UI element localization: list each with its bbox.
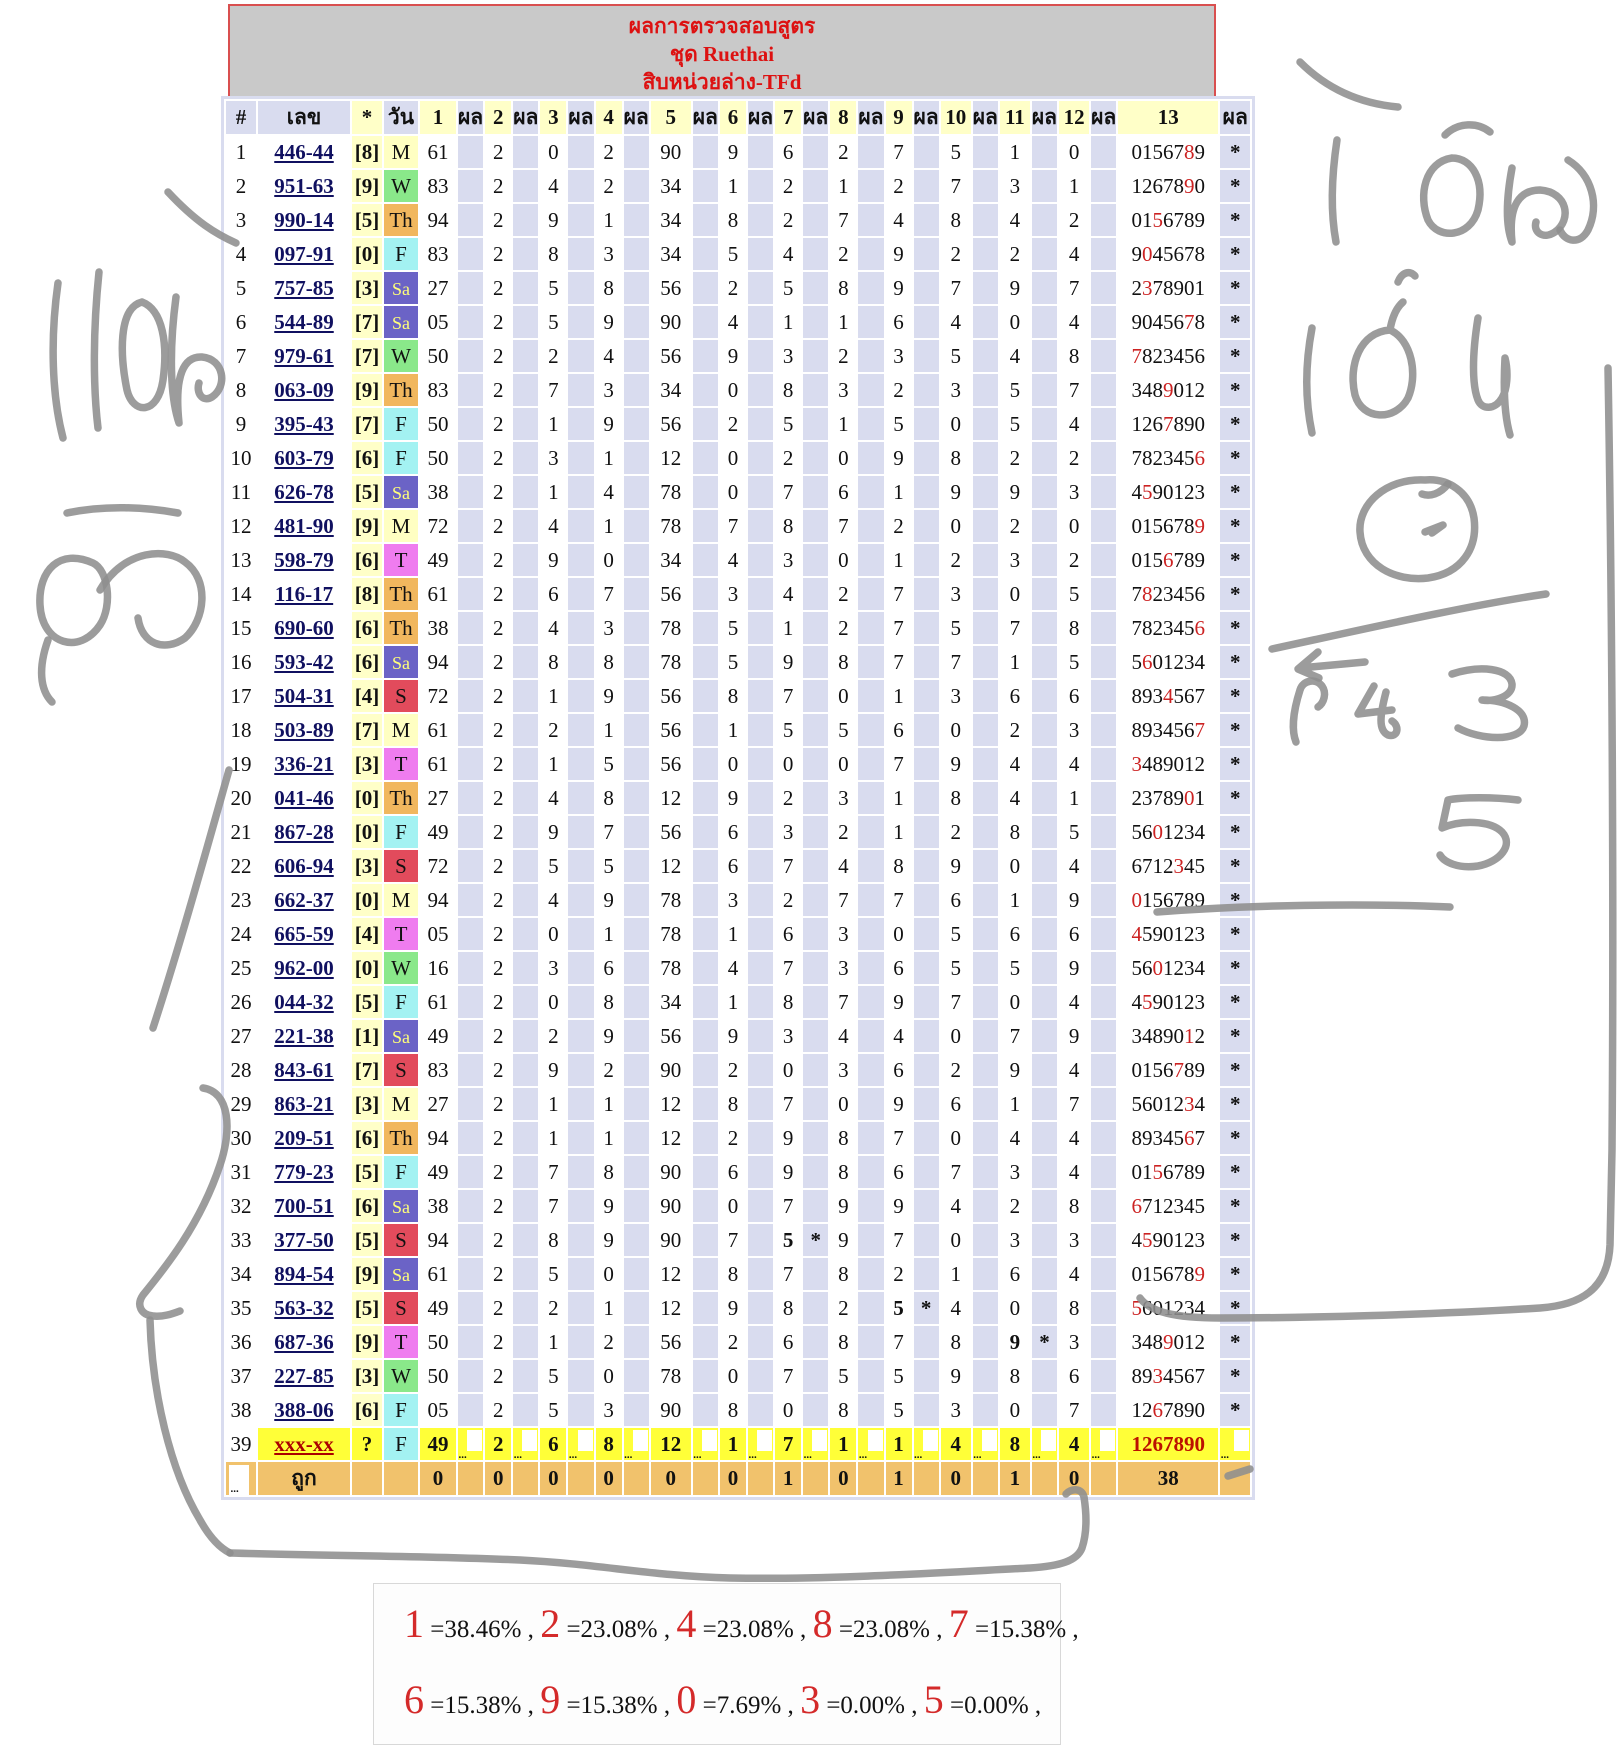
value-cell-6: 1 xyxy=(719,917,747,951)
table-row: 35563-32[5]S49221129825*4085601234* xyxy=(225,1291,1251,1325)
value-cell-9: 7 xyxy=(885,611,913,645)
value-cell-5: 12 xyxy=(650,441,692,475)
value-cell-3: 1 xyxy=(539,475,567,509)
number-link[interactable]: 097-91 xyxy=(274,242,334,266)
value-cell-1: 38 xyxy=(419,611,457,645)
number-link[interactable]: 843-61 xyxy=(274,1058,334,1082)
result-cell-2 xyxy=(512,815,539,849)
result-cell-7 xyxy=(802,1053,829,1087)
result-cell-2 xyxy=(512,407,539,441)
value-cell-9: 7 xyxy=(885,747,913,781)
prediction-row: 39xxx-xx?F49...2...6...8...12...1...7...… xyxy=(225,1427,1251,1461)
value-cell-12: 7 xyxy=(1058,373,1090,407)
value-cell-1: 38 xyxy=(419,1189,457,1223)
result-cell-7 xyxy=(802,951,829,985)
value-cell-11: 5 xyxy=(999,373,1031,407)
result-cell-7: * xyxy=(802,1223,829,1257)
row-index: 18 xyxy=(225,713,257,747)
value-cell-8: 2 xyxy=(829,577,857,611)
number-cell: 503-89 xyxy=(257,713,351,747)
value-cell-12: 0 xyxy=(1058,509,1090,543)
value-cell-12: 8 xyxy=(1058,1291,1090,1325)
star-bracket-cell: [6] xyxy=(351,1189,383,1223)
footer-count-2: 0 xyxy=(484,1461,512,1496)
result-cell-10 xyxy=(972,611,999,645)
value-cell-5: 56 xyxy=(650,1325,692,1359)
summary-line-2: 6 =15.38% , 9 =15.38% , 0 =7.69% , 3 =0.… xyxy=(404,1662,1060,1738)
handwriting-right-word-top xyxy=(1300,62,1398,107)
result-cell-10 xyxy=(972,1291,999,1325)
value-cell-8: 8 xyxy=(829,1325,857,1359)
table-row: 6544-89[7]Sa052599041164049045678* xyxy=(225,305,1251,339)
value-cell-7: 9 xyxy=(774,645,802,679)
value-cell-13: 0156789 xyxy=(1117,1257,1219,1291)
value-cell-3: 2 xyxy=(539,1291,567,1325)
value-cell-4: 8 xyxy=(595,271,623,305)
value-cell-1: 50 xyxy=(419,339,457,373)
number-link[interactable]: 377-50 xyxy=(274,1228,334,1252)
result-cell-4 xyxy=(623,1325,650,1359)
number-cell: 843-61 xyxy=(257,1053,351,1087)
value-cell-12: 2 xyxy=(1058,543,1090,577)
value-cell-13: 7823456 xyxy=(1117,611,1219,645)
value-cell-3: 6 xyxy=(539,577,567,611)
summary-percent: =23.08% , xyxy=(560,1616,676,1643)
number-link[interactable]: 336-21 xyxy=(274,752,334,776)
value-cell-10: 8 xyxy=(940,781,972,815)
value-cell-5: 78 xyxy=(650,475,692,509)
result-cell-3 xyxy=(567,645,594,679)
result-cell-1 xyxy=(457,917,484,951)
value-cell-12: 5 xyxy=(1058,645,1090,679)
number-link[interactable]: 481-90 xyxy=(274,514,334,538)
value-cell-6: 9 xyxy=(719,1019,747,1053)
result-cell-12 xyxy=(1090,1155,1117,1189)
value-cell-1: 61 xyxy=(419,135,457,169)
value-cell-4: 2 xyxy=(595,169,623,203)
result-cell-4 xyxy=(623,611,650,645)
result-cell-4 xyxy=(623,1257,650,1291)
header-row: #เลข*วัน1ผล2ผล3ผล4ผล5ผล6ผล7ผล8ผล9ผล10ผล1… xyxy=(225,100,1251,135)
result-cell-7 xyxy=(802,1019,829,1053)
value-cell-11: 2 xyxy=(999,713,1031,747)
value-cell-9: 5 xyxy=(885,407,913,441)
table-row: 21867-28[0]F492975663212855601234* xyxy=(225,815,1251,849)
row-index: 15 xyxy=(225,611,257,645)
result-cell-13: * xyxy=(1219,917,1251,951)
table-row: 14116-17[8]Th612675634273057823456* xyxy=(225,577,1251,611)
value-cell-13: 5601234 xyxy=(1117,645,1219,679)
result-cell-3 xyxy=(567,1325,594,1359)
result-cell-8 xyxy=(857,1359,884,1393)
value-cell-6: 9 xyxy=(719,1291,747,1325)
value-cell-1: 94 xyxy=(419,203,457,237)
handwriting-mark-2 xyxy=(140,1088,227,1316)
value-cell-2: 2 xyxy=(484,985,512,1019)
value-cell-6: 3 xyxy=(719,577,747,611)
result-cell-12 xyxy=(1090,679,1117,713)
value-cell-2: 2 xyxy=(484,577,512,611)
footer-count-1: 0 xyxy=(419,1461,457,1496)
number-link[interactable]: 063-09 xyxy=(274,378,334,402)
star-bracket-cell: [7] xyxy=(351,407,383,441)
result-cell-9 xyxy=(913,679,940,713)
value-cell-2: 2 xyxy=(484,1325,512,1359)
number-link[interactable]: 665-59 xyxy=(274,922,334,946)
number-link[interactable]: 598-79 xyxy=(274,548,334,572)
value-cell-7: 6 xyxy=(774,1325,802,1359)
footer-empty-cell xyxy=(567,1461,594,1496)
result-cell-5 xyxy=(692,611,719,645)
value-cell-8: 8 xyxy=(829,1393,857,1427)
result-cell-12 xyxy=(1090,985,1117,1019)
result-cell-12 xyxy=(1090,1359,1117,1393)
star-bracket-cell: [6] xyxy=(351,1121,383,1155)
number-link[interactable]: 504-31 xyxy=(274,684,334,708)
star-bracket-cell: [9] xyxy=(351,1325,383,1359)
value-cell-5: 90 xyxy=(650,1155,692,1189)
value-cell-8: 2 xyxy=(829,815,857,849)
footer-empty-cell xyxy=(383,1461,419,1496)
star-bracket-cell: [5] xyxy=(351,475,383,509)
result-cell-8 xyxy=(857,849,884,883)
result-cell-12 xyxy=(1090,577,1117,611)
result-cell-2 xyxy=(512,1121,539,1155)
number-link[interactable]: 606-94 xyxy=(274,854,334,878)
day-cell: W xyxy=(383,951,419,985)
result-cell-2 xyxy=(512,203,539,237)
value-cell-3: 8 xyxy=(539,1223,567,1257)
day-cell: S xyxy=(383,849,419,883)
result-cell-13: * xyxy=(1219,1257,1251,1291)
number-link[interactable]: 962-00 xyxy=(274,956,334,980)
result-cell-1 xyxy=(457,441,484,475)
row-index: 13 xyxy=(225,543,257,577)
result-cell-1 xyxy=(457,339,484,373)
number-link[interactable]: 690-60 xyxy=(274,616,334,640)
value-cell-1: 72 xyxy=(419,679,457,713)
number-link[interactable]: 990-14 xyxy=(274,208,334,232)
result-cell-8 xyxy=(857,339,884,373)
result-cell-6 xyxy=(747,305,774,339)
value-cell-7: 2 xyxy=(774,781,802,815)
value-cell-9: 5 xyxy=(885,1291,913,1325)
result-cell-13: * xyxy=(1219,849,1251,883)
result-cell-8 xyxy=(857,203,884,237)
value-cell-9: 6 xyxy=(885,1155,913,1189)
number-cell: 044-32 xyxy=(257,985,351,1019)
number-cell: 700-51 xyxy=(257,1189,351,1223)
value-cell-10: 9 xyxy=(940,1359,972,1393)
result-cell-8 xyxy=(857,1189,884,1223)
value-cell-3: 3 xyxy=(539,441,567,475)
value-cell-11: 8 xyxy=(999,1427,1031,1461)
result-cell-11 xyxy=(1031,849,1058,883)
value-cell-1: 94 xyxy=(419,645,457,679)
result-cell-3 xyxy=(567,373,594,407)
number-cell: 662-37 xyxy=(257,883,351,917)
number-link[interactable]: 779-23 xyxy=(274,1160,334,1184)
result-cell-11 xyxy=(1031,917,1058,951)
number-cell: 563-32 xyxy=(257,1291,351,1325)
day-cell: S xyxy=(383,1053,419,1087)
value-cell-11: 2 xyxy=(999,237,1031,271)
value-cell-1: 61 xyxy=(419,713,457,747)
value-cell-1: 94 xyxy=(419,883,457,917)
value-cell-4: 2 xyxy=(595,135,623,169)
result-cell-10 xyxy=(972,1223,999,1257)
number-link[interactable]: 603-79 xyxy=(274,446,334,470)
value-cell-11: 3 xyxy=(999,543,1031,577)
value-cell-11: 4 xyxy=(999,747,1031,781)
value-cell-13: 8934567 xyxy=(1117,713,1219,747)
result-cell-13: * xyxy=(1219,441,1251,475)
row-index: 37 xyxy=(225,1359,257,1393)
result-cell-11 xyxy=(1031,475,1058,509)
table-row: 4097-91[0]F832833454292249045678* xyxy=(225,237,1251,271)
day-cell: F xyxy=(383,985,419,1019)
result-cell-11 xyxy=(1031,135,1058,169)
result-cell-4 xyxy=(623,1121,650,1155)
value-cell-6: 2 xyxy=(719,271,747,305)
number-link[interactable]: 503-89 xyxy=(274,718,334,742)
star-bracket-cell: [5] xyxy=(351,985,383,1019)
value-cell-6: 9 xyxy=(719,135,747,169)
value-cell-11: 2 xyxy=(999,441,1031,475)
result-cell-13: * xyxy=(1219,509,1251,543)
value-cell-9: 7 xyxy=(885,1121,913,1155)
value-cell-5: 12 xyxy=(650,1257,692,1291)
value-cell-9: 5 xyxy=(885,1359,913,1393)
value-cell-7: 0 xyxy=(774,1053,802,1087)
col-header-7: 7 xyxy=(774,100,802,135)
value-cell-12: 7 xyxy=(1058,1087,1090,1121)
number-link[interactable]: 044-32 xyxy=(274,990,334,1014)
number-link[interactable]: 951-63 xyxy=(274,174,334,198)
result-cell-4 xyxy=(623,917,650,951)
result-cell-5 xyxy=(692,985,719,1019)
day-cell: F xyxy=(383,1393,419,1427)
number-link[interactable]: 209-51 xyxy=(274,1126,334,1150)
value-cell-10: 4 xyxy=(940,1189,972,1223)
number-link[interactable]: 700-51 xyxy=(274,1194,334,1218)
result-cell-13: ... xyxy=(1219,1427,1251,1461)
result-cell-13: * xyxy=(1219,1393,1251,1427)
result-cell-12 xyxy=(1090,407,1117,441)
result-cell-13: * xyxy=(1219,713,1251,747)
number-link[interactable]: 894-54 xyxy=(274,1262,334,1286)
result-cell-10 xyxy=(972,1019,999,1053)
number-link[interactable]: 388-06 xyxy=(274,1398,334,1422)
day-cell: Sa xyxy=(383,645,419,679)
number-link[interactable]: 041-46 xyxy=(274,786,334,810)
value-cell-7: 3 xyxy=(774,543,802,577)
summary-digit: 0 xyxy=(676,1677,696,1722)
summary-percent: =0.00% , xyxy=(944,1692,1041,1719)
value-cell-10: 3 xyxy=(940,577,972,611)
result-cell-3 xyxy=(567,577,594,611)
value-cell-2: 2 xyxy=(484,1053,512,1087)
result-cell-13: * xyxy=(1219,1325,1251,1359)
value-cell-6: 2 xyxy=(719,1053,747,1087)
number-link[interactable]: 687-36 xyxy=(274,1330,334,1354)
result-cell-10: ... xyxy=(972,1427,999,1461)
value-cell-2: 2 xyxy=(484,135,512,169)
value-cell-13: 0156789 xyxy=(1117,543,1219,577)
value-cell-2: 2 xyxy=(484,849,512,883)
result-cell-9 xyxy=(913,1087,940,1121)
result-cell-10 xyxy=(972,305,999,339)
result-cell-9 xyxy=(913,1053,940,1087)
star-bracket-cell: [5] xyxy=(351,1155,383,1189)
value-cell-12: 1 xyxy=(1058,781,1090,815)
value-cell-5: 34 xyxy=(650,543,692,577)
footer-empty-cell xyxy=(1090,1461,1117,1496)
result-cell-8 xyxy=(857,543,884,577)
number-link[interactable]: 563-32 xyxy=(274,1296,334,1320)
row-index: 3 xyxy=(225,203,257,237)
number-link[interactable]: 863-21 xyxy=(274,1092,334,1116)
result-cell-2: ... xyxy=(512,1427,539,1461)
result-cell-2 xyxy=(512,883,539,917)
value-cell-2: 2 xyxy=(484,543,512,577)
number-link[interactable]: 446-44 xyxy=(274,140,334,164)
value-cell-13: 6712345 xyxy=(1117,849,1219,883)
value-cell-4: 8 xyxy=(595,781,623,815)
value-cell-6: 0 xyxy=(719,1189,747,1223)
value-cell-13: 3489012 xyxy=(1117,373,1219,407)
value-cell-5: 78 xyxy=(650,1359,692,1393)
value-cell-9: 7 xyxy=(885,645,913,679)
handwriting-small-note xyxy=(1358,686,1397,735)
value-cell-6: 6 xyxy=(719,815,747,849)
day-cell: F xyxy=(383,407,419,441)
value-cell-1: 72 xyxy=(419,509,457,543)
day-cell: T xyxy=(383,1325,419,1359)
value-cell-2: 2 xyxy=(484,747,512,781)
value-cell-8: 1 xyxy=(829,407,857,441)
value-cell-11: 1 xyxy=(999,645,1031,679)
number-link[interactable]: xxx-xx xyxy=(274,1432,334,1456)
value-cell-5: 90 xyxy=(650,1189,692,1223)
value-cell-4: 1 xyxy=(595,1087,623,1121)
value-cell-3: 1 xyxy=(539,1121,567,1155)
result-cell-8 xyxy=(857,645,884,679)
result-cell-5 xyxy=(692,169,719,203)
number-link[interactable]: 867-28 xyxy=(274,820,334,844)
result-cell-5 xyxy=(692,373,719,407)
value-cell-10: 4 xyxy=(940,1291,972,1325)
value-cell-12: 9 xyxy=(1058,951,1090,985)
handwriting-left-word-top xyxy=(94,272,99,428)
value-cell-9: 9 xyxy=(885,271,913,305)
value-cell-12: 4 xyxy=(1058,849,1090,883)
value-cell-1: 49 xyxy=(419,1155,457,1189)
number-link[interactable]: 979-61 xyxy=(274,344,334,368)
value-cell-5: 12 xyxy=(650,1291,692,1325)
day-cell: Sa xyxy=(383,1019,419,1053)
result-cell-12 xyxy=(1090,1291,1117,1325)
number-link[interactable]: 593-42 xyxy=(274,650,334,674)
summary-percent: =0.00% , xyxy=(820,1692,924,1719)
result-cell-5 xyxy=(692,509,719,543)
result-cell-11 xyxy=(1031,305,1058,339)
result-cell-8 xyxy=(857,373,884,407)
result-cell-2 xyxy=(512,1189,539,1223)
result-cell-6 xyxy=(747,237,774,271)
col-header-6: 6 xyxy=(719,100,747,135)
row-index: 11 xyxy=(225,475,257,509)
result-cell-5 xyxy=(692,407,719,441)
results-table-body: #เลข*วัน1ผล2ผล3ผล4ผล5ผล6ผล7ผล8ผล9ผล10ผล1… xyxy=(225,100,1251,1496)
handwriting-right-word-top xyxy=(1508,168,1566,242)
number-link[interactable]: 221-38 xyxy=(274,1024,334,1048)
row-index: 27 xyxy=(225,1019,257,1053)
value-cell-1: 83 xyxy=(419,169,457,203)
result-cell-12 xyxy=(1090,441,1117,475)
result-cell-1 xyxy=(457,611,484,645)
number-cell: 209-51 xyxy=(257,1121,351,1155)
value-cell-4: 3 xyxy=(595,373,623,407)
footer-empty-cell xyxy=(623,1461,650,1496)
number-link[interactable]: 116-17 xyxy=(275,582,333,606)
number-link[interactable]: 395-43 xyxy=(274,412,334,436)
result-cell-3 xyxy=(567,169,594,203)
result-cell-9 xyxy=(913,339,940,373)
number-link[interactable]: 626-78 xyxy=(274,480,334,504)
value-cell-9: 7 xyxy=(885,883,913,917)
day-cell: M xyxy=(383,713,419,747)
number-link[interactable]: 544-89 xyxy=(274,310,334,334)
value-cell-13: 6712345 xyxy=(1117,1189,1219,1223)
result-cell-11 xyxy=(1031,407,1058,441)
value-cell-12: 4 xyxy=(1058,1257,1090,1291)
result-cell-1 xyxy=(457,407,484,441)
value-cell-6: 8 xyxy=(719,1393,747,1427)
value-cell-6: 9 xyxy=(719,781,747,815)
value-cell-13: 1267890 xyxy=(1117,407,1219,441)
number-link[interactable]: 662-37 xyxy=(274,888,334,912)
result-cell-7 xyxy=(802,815,829,849)
result-cell-4 xyxy=(623,713,650,747)
result-cell-9 xyxy=(913,951,940,985)
value-cell-11: 0 xyxy=(999,849,1031,883)
number-cell: 951-63 xyxy=(257,169,351,203)
result-cell-5 xyxy=(692,1325,719,1359)
handwriting-right-word-mid xyxy=(1474,318,1511,435)
result-cell-6 xyxy=(747,815,774,849)
number-link[interactable]: 757-85 xyxy=(274,276,334,300)
number-link[interactable]: 227-85 xyxy=(274,1364,334,1388)
value-cell-3: 7 xyxy=(539,1189,567,1223)
result-cell-4 xyxy=(623,509,650,543)
number-cell: 446-44 xyxy=(257,135,351,169)
value-cell-7: 7 xyxy=(774,849,802,883)
day-cell: M xyxy=(383,509,419,543)
value-cell-2: 2 xyxy=(484,713,512,747)
result-cell-9 xyxy=(913,135,940,169)
value-cell-6: 3 xyxy=(719,883,747,917)
result-cell-3 xyxy=(567,237,594,271)
value-cell-11: 0 xyxy=(999,1393,1031,1427)
value-cell-4: 1 xyxy=(595,203,623,237)
result-cell-10 xyxy=(972,951,999,985)
result-cell-3 xyxy=(567,679,594,713)
number-cell: 063-09 xyxy=(257,373,351,407)
row-index: 17 xyxy=(225,679,257,713)
result-cell-12 xyxy=(1090,1053,1117,1087)
result-cell-13: * xyxy=(1219,781,1251,815)
